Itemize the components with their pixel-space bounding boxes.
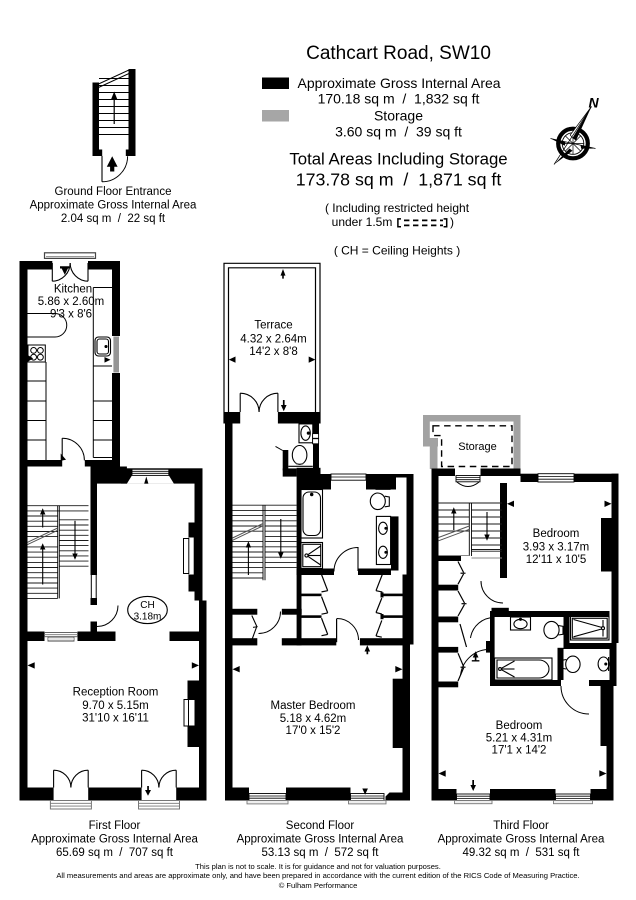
svg-text:This plan is not to scale. It: This plan is not to scale. It is for gui… [195,862,441,871]
svg-text:( Including restricted height: ( Including restricted height [325,201,470,215]
svg-text:CH: CH [140,600,154,611]
svg-text:Approximate Gross Internal Are: Approximate Gross Internal Area [438,834,605,846]
svg-text:Storage: Storage [458,441,497,453]
svg-text:Cathcart Road, SW10: Cathcart Road, SW10 [306,43,491,64]
svg-text:Bedroom: Bedroom [496,720,543,732]
svg-text:53.13 sq m / 572 sq ft: 53.13 sq m / 572 sq ft [262,847,380,859]
svg-text:Terrace: Terrace [254,320,292,332]
svg-text:): ) [450,215,454,229]
svg-text:All measurements and areas are: All measurements and areas are approxima… [56,871,579,880]
svg-text:12'11 x 10'5: 12'11 x 10'5 [526,554,586,566]
svg-text:Third Floor: Third Floor [493,820,549,832]
svg-text:49.32 sq m / 531 sq ft: 49.32 sq m / 531 sq ft [463,847,581,859]
svg-text:Total Areas Including Storage: Total Areas Including Storage [289,150,507,169]
svg-text:9'3 x 8'6: 9'3 x 8'6 [50,309,92,321]
svg-text:3.60 sq m / 39 sq ft: 3.60 sq m / 39 sq ft [335,124,462,140]
svg-text:Approximate Gross Internal Are: Approximate Gross Internal Area [298,75,501,91]
svg-text:© Fulham Performance: © Fulham Performance [279,881,358,890]
svg-text:Approximate Gross Internal Are: Approximate Gross Internal Area [237,834,404,846]
svg-text:4.32 x 2.64m: 4.32 x 2.64m [240,333,306,345]
svg-text:Master Bedroom: Master Bedroom [270,700,355,712]
svg-text:Bedroom: Bedroom [533,528,580,540]
svg-text:Kitchen: Kitchen [54,284,92,296]
svg-text:Storage: Storage [374,108,423,124]
svg-text:( CH = Ceiling Heights ): ( CH = Ceiling Heights ) [334,244,460,258]
svg-text:3.93 x 3.17m: 3.93 x 3.17m [523,542,589,554]
svg-text:5.21 x 4.31m: 5.21 x 4.31m [486,733,552,745]
svg-text:5.18 x 4.62m: 5.18 x 4.62m [280,713,346,725]
svg-text:3.18m: 3.18m [134,612,162,623]
svg-text:Approximate Gross Internal Are: Approximate Gross Internal Area [30,200,197,212]
svg-text:170.18 sq m / 1,832 sq ft: 170.18 sq m / 1,832 sq ft [318,91,480,107]
svg-text:under 1.5m: under 1.5m [332,215,393,229]
svg-text:17'1 x 14'2: 17'1 x 14'2 [492,745,547,757]
svg-text:Approximate Gross Internal Are: Approximate Gross Internal Area [31,834,198,846]
svg-text:17'0 x 15'2: 17'0 x 15'2 [286,725,341,737]
svg-text:65.69 sq m / 707 sq ft: 65.69 sq m / 707 sq ft [56,847,174,859]
svg-text:Reception Room: Reception Room [73,687,159,699]
svg-text:N: N [588,95,599,111]
svg-text:173.78 sq m / 1,871 sq ft: 173.78 sq m / 1,871 sq ft [296,170,502,190]
svg-text:14'2 x 8'8: 14'2 x 8'8 [249,346,298,358]
svg-text:2.04 sq m / 22 sq ft: 2.04 sq m / 22 sq ft [61,213,166,225]
svg-text:Ground Floor Entrance: Ground Floor Entrance [55,186,172,198]
svg-text:Second Floor: Second Floor [286,820,355,832]
svg-text:31'10 x 16'11: 31'10 x 16'11 [82,713,149,725]
svg-text:First Floor: First Floor [89,820,141,832]
svg-text:9.70 x 5.15m: 9.70 x 5.15m [82,700,148,712]
svg-text:5.86 x 2.60m: 5.86 x 2.60m [38,296,104,308]
